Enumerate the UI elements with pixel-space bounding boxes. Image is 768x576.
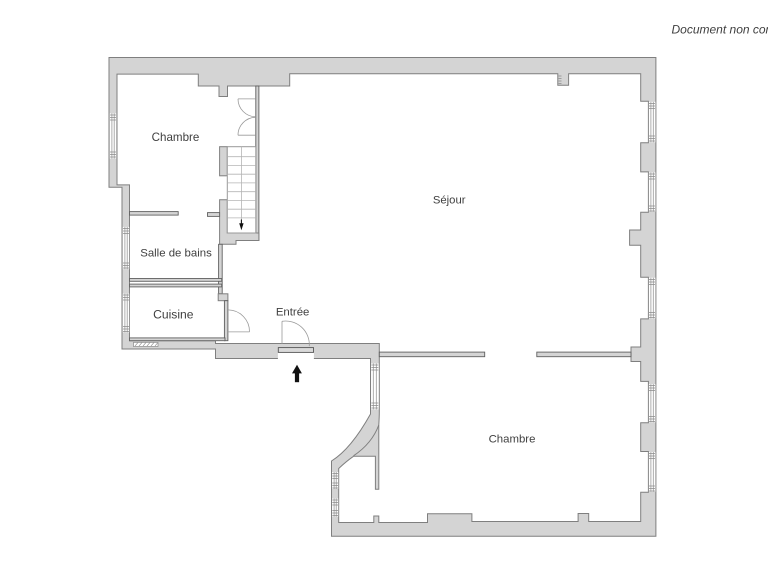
svg-text:Entrée: Entrée <box>276 307 310 319</box>
svg-text:Chambre: Chambre <box>152 131 200 144</box>
svg-text:Document non contractuel: Document non contractuel <box>672 22 768 36</box>
svg-text:Chambre: Chambre <box>489 434 536 446</box>
svg-text:Salle de bains: Salle de bains <box>140 247 212 259</box>
svg-text:Cuisine: Cuisine <box>153 307 194 321</box>
svg-text:Séjour: Séjour <box>433 195 466 207</box>
